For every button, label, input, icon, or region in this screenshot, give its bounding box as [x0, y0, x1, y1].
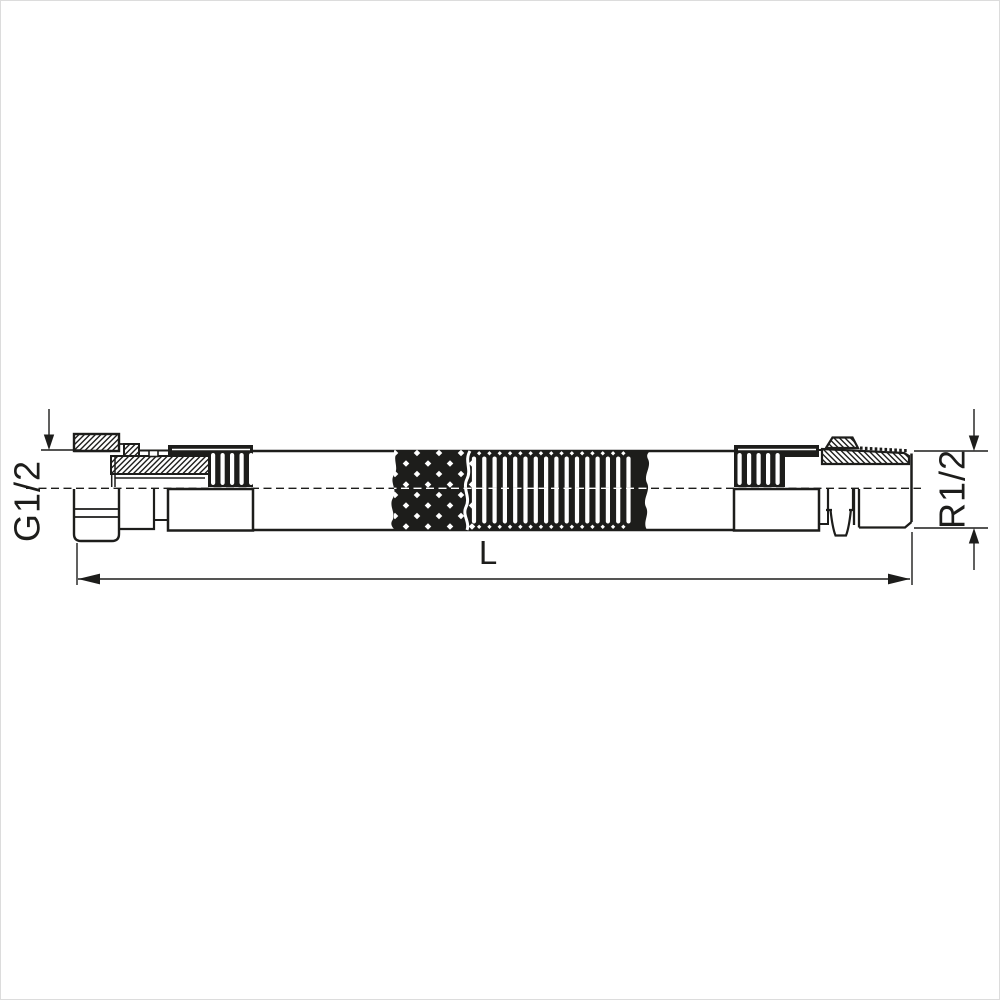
l-arrowhead-right: [888, 574, 910, 585]
corrugation-slot: [606, 457, 610, 524]
right-thread-label: R1/2: [932, 449, 973, 529]
left-nut-section-step-outline: [119, 434, 124, 444]
thread-crest-dash: [885, 448, 888, 451]
corrugation-slot: [503, 457, 507, 524]
left-fitting: [74, 434, 253, 541]
right-hex-exterior: [826, 489, 855, 536]
crimp-slot: [230, 453, 234, 485]
corrugation-slot: [585, 457, 589, 524]
dimension-length: L: [77, 532, 912, 585]
left-nipple-section-hatch: [111, 456, 211, 474]
crimp-slot: [747, 453, 751, 485]
crimp-slot: [249, 453, 253, 485]
r-arrowhead-bottom: [969, 528, 979, 544]
crimp-slot: [240, 453, 244, 485]
left-step-exterior: [119, 489, 154, 529]
corrugation-slot: [493, 457, 497, 524]
thread-crest-dash: [899, 449, 902, 452]
thread-crest-dash: [894, 448, 897, 451]
thread-crest-dash: [880, 448, 883, 451]
right-fitting: [734, 438, 912, 536]
crimp-slot: [211, 453, 215, 485]
crimp-slot: [776, 453, 780, 485]
thread-crest-dash: [870, 447, 873, 450]
corrugation-slot: [575, 457, 579, 524]
crimp-slot: [738, 453, 742, 485]
crimp-slot: [221, 453, 225, 485]
braid-cutaway: [391, 450, 650, 530]
r-arrowhead-top: [969, 436, 979, 452]
corrugation-slot: [544, 457, 548, 524]
corrugation-slot: [554, 457, 558, 524]
g-arrowhead: [44, 435, 54, 451]
corrugation-slot: [626, 457, 630, 524]
corrugation-slot: [565, 457, 569, 524]
corrugation-slot: [523, 457, 527, 524]
thread-crest-dash: [860, 447, 863, 450]
thread-crest-dash: [904, 449, 907, 452]
right-hex-bump-hatch: [826, 438, 858, 449]
left-sleeve-exterior: [168, 489, 253, 531]
crimp-slot: [766, 453, 770, 485]
left-washer-section-hatch: [124, 444, 139, 456]
corrugation-slot: [616, 457, 620, 524]
right-neck-exterior: [819, 489, 828, 524]
left-body-tab: [149, 451, 158, 457]
left-nut-section-hatch: [74, 434, 119, 451]
corrugation-slot: [472, 457, 476, 524]
l-arrowhead-left: [78, 574, 100, 585]
corrugation-slot: [534, 457, 538, 524]
dimension-right-thread: R1/2: [914, 409, 988, 570]
crimp-slot: [757, 453, 761, 485]
drawing-canvas: G1/2 R1/2 L: [0, 0, 1000, 1000]
thread-crest-dash: [875, 447, 878, 450]
corrugation-slot: [513, 457, 517, 524]
dimension-left-thread: G1/2: [7, 409, 81, 542]
left-nut-exterior: [74, 489, 119, 541]
corrugation-slot: [482, 457, 486, 524]
right-male-thread-exterior: [854, 489, 912, 528]
right-sleeve-exterior: [734, 489, 819, 531]
hose-technical-drawing: G1/2 R1/2 L: [1, 1, 1000, 1000]
thread-crest-dash: [865, 447, 868, 450]
thread-crest-dash: [889, 448, 892, 451]
corrugation-slot: [596, 457, 600, 524]
left-thread-label: G1/2: [7, 460, 48, 542]
length-label: L: [479, 534, 497, 571]
